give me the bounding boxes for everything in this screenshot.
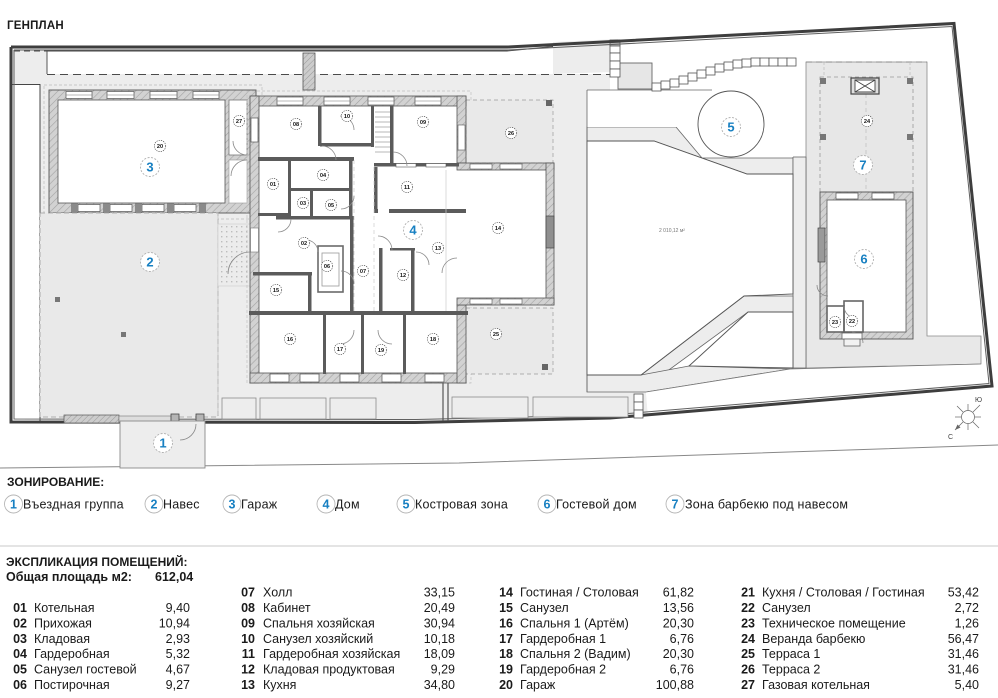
svg-text:06: 06 [324,264,330,270]
svg-text:20,49: 20,49 [424,601,455,615]
svg-text:20: 20 [157,144,163,150]
svg-text:Гостиная / Столовая: Гостиная / Столовая [520,586,639,600]
svg-text:04: 04 [320,173,327,179]
svg-text:56,47: 56,47 [948,632,979,646]
svg-text:16: 16 [499,616,513,630]
svg-text:Костровая зона: Костровая зона [415,498,508,512]
svg-text:27: 27 [741,678,755,692]
svg-text:09: 09 [420,120,426,126]
svg-text:18: 18 [430,337,436,343]
svg-text:06: 06 [13,678,27,692]
svg-text:Постирочная: Постирочная [34,678,110,692]
svg-text:3: 3 [229,498,236,512]
svg-text:22: 22 [849,319,855,325]
svg-text:31,46: 31,46 [948,647,979,661]
svg-text:12: 12 [241,663,255,677]
svg-text:02: 02 [13,616,27,630]
svg-text:Газовая котельная: Газовая котельная [762,678,870,692]
svg-text:10,94: 10,94 [159,616,190,630]
svg-text:10: 10 [344,114,350,120]
svg-text:2 010,12 м²: 2 010,12 м² [659,228,685,234]
svg-text:6,76: 6,76 [670,632,694,646]
svg-text:1: 1 [159,436,166,451]
svg-text:Дом: Дом [335,498,360,512]
svg-text:13,56: 13,56 [663,601,694,615]
svg-text:24: 24 [741,632,755,646]
svg-text:24: 24 [864,119,871,125]
svg-text:5,32: 5,32 [166,647,190,661]
svg-text:03: 03 [300,201,306,207]
svg-text:17: 17 [337,347,343,353]
svg-text:7: 7 [672,498,679,512]
svg-text:20: 20 [499,678,513,692]
svg-text:13: 13 [435,246,441,252]
svg-text:20,30: 20,30 [663,647,694,661]
svg-text:Спальня 2 (Вадим): Спальня 2 (Вадим) [520,647,631,661]
svg-text:Кабинет: Кабинет [263,601,311,615]
svg-text:1,26: 1,26 [955,616,979,630]
svg-text:Навес: Навес [163,498,200,512]
svg-text:1: 1 [10,498,17,512]
svg-text:Въездная группа: Въездная группа [23,498,124,512]
svg-text:Котельная: Котельная [34,601,95,615]
svg-text:5,40: 5,40 [955,678,979,692]
svg-text:Санузел: Санузел [520,601,569,615]
svg-text:Терраса 2: Терраса 2 [762,663,820,677]
svg-text:31,46: 31,46 [948,663,979,677]
svg-text:4,67: 4,67 [166,663,190,677]
svg-text:18,09: 18,09 [424,647,455,661]
svg-text:10: 10 [241,632,255,646]
svg-text:С: С [948,434,953,441]
svg-text:Санузел: Санузел [762,601,811,615]
svg-text:15: 15 [273,288,279,294]
svg-text:25: 25 [741,647,755,661]
svg-text:Общая площадь м2:: Общая площадь м2: [6,570,132,584]
svg-text:05: 05 [13,663,27,677]
svg-text:01: 01 [13,601,27,615]
svg-text:Гардеробная 2: Гардеробная 2 [520,663,606,677]
svg-text:2,72: 2,72 [955,601,979,615]
svg-text:26: 26 [741,663,755,677]
svg-text:ЭКСПЛИКАЦИЯ ПОМЕЩЕНИЙ:: ЭКСПЛИКАЦИЯ ПОМЕЩЕНИЙ: [6,554,187,569]
svg-text:5: 5 [727,120,734,135]
svg-text:15: 15 [499,601,513,615]
svg-text:ГЕНПЛАН: ГЕНПЛАН [7,20,64,32]
svg-text:19: 19 [499,663,513,677]
svg-text:Кладовая: Кладовая [34,632,90,646]
svg-text:9,27: 9,27 [166,678,190,692]
svg-text:30,94: 30,94 [424,616,455,630]
svg-text:Кухня / Столовая / Гостиная: Кухня / Столовая / Гостиная [762,586,925,600]
svg-text:2: 2 [146,255,153,270]
svg-text:20,30: 20,30 [663,616,694,630]
svg-text:6: 6 [544,498,551,512]
svg-text:23: 23 [741,616,755,630]
svg-text:17: 17 [499,632,513,646]
svg-text:14: 14 [499,586,513,600]
svg-text:08: 08 [241,601,255,615]
svg-text:27: 27 [236,119,242,125]
svg-text:10,18: 10,18 [424,632,455,646]
svg-text:Холл: Холл [263,586,292,600]
svg-text:Гостевой дом: Гостевой дом [556,498,637,512]
svg-text:Техническое помещение: Техническое помещение [762,616,906,630]
svg-text:Спальня хозяйская: Спальня хозяйская [263,616,375,630]
svg-text:08: 08 [293,122,299,128]
svg-text:25: 25 [493,332,499,338]
svg-text:4: 4 [323,498,330,512]
svg-text:33,15: 33,15 [424,586,455,600]
svg-text:09: 09 [241,616,255,630]
svg-text:Гардеробная: Гардеробная [34,647,110,661]
svg-text:13: 13 [241,678,255,692]
svg-text:Спальня 1 (Артём): Спальня 1 (Артём) [520,616,629,630]
svg-text:61,82: 61,82 [663,586,694,600]
svg-text:2: 2 [151,498,158,512]
svg-text:01: 01 [270,182,276,188]
svg-text:6: 6 [860,252,867,267]
svg-text:2,93: 2,93 [166,632,190,646]
svg-text:Ю: Ю [975,397,982,404]
svg-text:12: 12 [400,273,406,279]
svg-text:53,42: 53,42 [948,586,979,600]
svg-text:22: 22 [741,601,755,615]
svg-text:03: 03 [13,632,27,646]
svg-text:Санузел гостевой: Санузел гостевой [34,663,137,677]
svg-text:04: 04 [13,647,27,661]
svg-text:07: 07 [241,586,255,600]
svg-text:Терраса 1: Терраса 1 [762,647,820,661]
svg-text:Гараж: Гараж [241,498,278,512]
svg-text:612,04: 612,04 [155,570,193,584]
svg-text:7: 7 [859,158,866,173]
svg-text:100,88: 100,88 [656,678,694,692]
svg-text:Гардеробная хозяйская: Гардеробная хозяйская [263,647,400,661]
svg-text:11: 11 [242,647,255,661]
svg-text:19: 19 [378,348,384,354]
svg-text:34,80: 34,80 [424,678,455,692]
svg-text:14: 14 [495,226,502,232]
svg-text:Веранда барбекю: Веранда барбекю [762,632,865,646]
svg-text:Гараж: Гараж [520,678,556,692]
svg-text:Гардеробная 1: Гардеробная 1 [520,632,606,646]
svg-text:23: 23 [832,320,838,326]
svg-text:02: 02 [301,241,307,247]
svg-text:05: 05 [328,203,334,209]
svg-text:Кладовая продуктовая: Кладовая продуктовая [263,663,395,677]
svg-text:9,29: 9,29 [431,663,455,677]
svg-text:9,40: 9,40 [166,601,190,615]
svg-text:Зона барбекю под навесом: Зона барбекю под навесом [685,498,848,512]
svg-text:4: 4 [409,223,417,238]
svg-text:ЗОНИРОВАНИЕ:: ЗОНИРОВАНИЕ: [7,475,104,489]
svg-text:18: 18 [499,647,513,661]
svg-text:Прихожая: Прихожая [34,616,92,630]
svg-text:3: 3 [146,160,153,175]
svg-text:07: 07 [360,269,366,275]
svg-text:26: 26 [508,131,514,137]
svg-text:21: 21 [741,586,755,600]
svg-text:Кухня: Кухня [263,678,296,692]
svg-text:11: 11 [404,185,410,191]
svg-text:16: 16 [287,337,293,343]
svg-text:Санузел хозяйский: Санузел хозяйский [263,632,373,646]
svg-text:6,76: 6,76 [670,663,694,677]
svg-text:5: 5 [403,498,410,512]
